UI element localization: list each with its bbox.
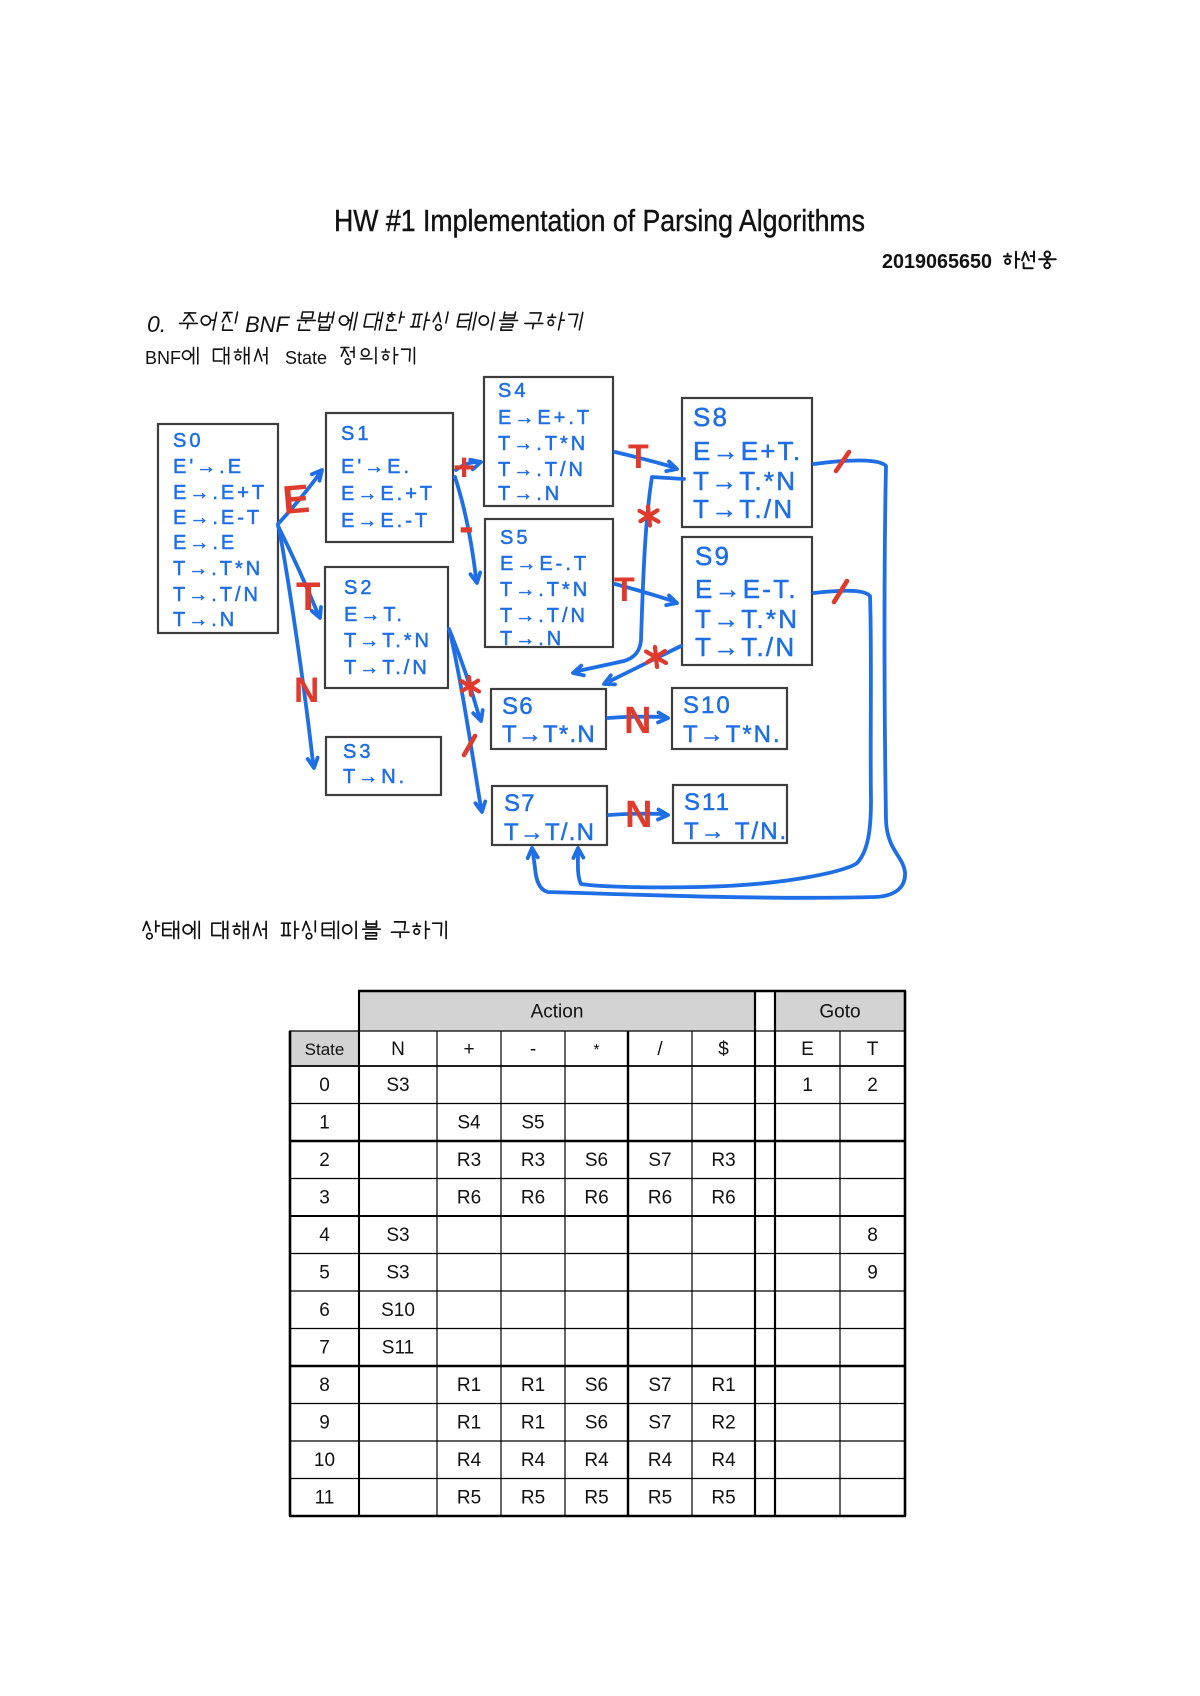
svg-text:S4: S4 (457, 1113, 481, 1134)
svg-text:E→.E: E→.E (173, 532, 237, 554)
svg-text:R3: R3 (711, 1150, 735, 1171)
svg-text:N: N (624, 700, 651, 742)
svg-text:E→E-T.: E→E-T. (695, 574, 798, 604)
svg-text:T→T*.N: T→T*.N (502, 721, 596, 748)
svg-text:N: N (391, 1039, 405, 1060)
svg-text:$: $ (718, 1039, 729, 1060)
svg-text:S11: S11 (684, 789, 731, 816)
svg-text:R1: R1 (457, 1375, 481, 1396)
svg-text:E→T.: E→T. (344, 604, 405, 626)
svg-text:E→E+T.: E→E+T. (693, 436, 802, 466)
svg-text:T: T (867, 1039, 879, 1060)
svg-text:E→E.-T: E→E.-T (341, 510, 430, 532)
svg-text:E→.E-T: E→.E-T (173, 507, 262, 529)
svg-text:T→T.*N: T→T.*N (695, 604, 799, 634)
svg-text:E: E (281, 477, 311, 523)
svg-text:R5: R5 (711, 1488, 735, 1509)
svg-text:T→.N: T→.N (173, 609, 237, 631)
svg-text:Goto: Goto (819, 1002, 860, 1023)
svg-text:T→.T*N: T→.T*N (498, 433, 588, 455)
svg-text:R6: R6 (711, 1188, 735, 1209)
svg-text:E'→.E: E'→.E (173, 456, 244, 478)
svg-text:7: 7 (319, 1338, 330, 1359)
svg-text:S11: S11 (382, 1338, 414, 1359)
svg-text:R4: R4 (457, 1450, 482, 1471)
svg-text:E: E (801, 1039, 814, 1060)
svg-text:R1: R1 (457, 1413, 481, 1434)
svg-text:HW #1 Implementation of Parsin: HW #1 Implementation of Parsing Algorith… (334, 203, 865, 238)
svg-text:5: 5 (319, 1263, 330, 1284)
svg-text:Action: Action (531, 1002, 584, 1023)
svg-text:S6: S6 (585, 1375, 608, 1396)
svg-text:T→T./N: T→T./N (344, 657, 430, 679)
svg-text:T→T./N: T→T./N (695, 632, 796, 662)
svg-text:T→N.: T→N. (343, 766, 407, 788)
svg-text:1: 1 (802, 1075, 813, 1096)
svg-text:E→.E+T: E→.E+T (173, 482, 267, 504)
svg-text:T: T (628, 438, 649, 476)
svg-text:E→E+.T: E→E+.T (498, 407, 592, 429)
svg-text:S8: S8 (693, 402, 729, 432)
svg-text:S4: S4 (498, 380, 528, 402)
svg-text:E→E-.T: E→E-.T (500, 553, 589, 575)
svg-text:T→.N: T→.N (500, 628, 564, 650)
svg-text:10: 10 (314, 1450, 335, 1471)
svg-text:R6: R6 (648, 1188, 672, 1209)
svg-text:E'→E.: E'→E. (341, 456, 412, 478)
svg-text:S10: S10 (683, 692, 732, 719)
svg-text:S3: S3 (386, 1225, 409, 1246)
svg-text:6: 6 (319, 1300, 330, 1321)
svg-text:S10: S10 (381, 1300, 415, 1321)
svg-text:T: T (614, 571, 635, 609)
svg-text:0: 0 (319, 1075, 330, 1096)
svg-text:2019065650: 2019065650 (882, 250, 992, 273)
svg-text:S7: S7 (648, 1375, 671, 1396)
svg-text:9: 9 (867, 1263, 878, 1284)
svg-text:R3: R3 (457, 1150, 481, 1171)
svg-text:R1: R1 (521, 1375, 545, 1396)
svg-text:T→ T/N.: T→ T/N. (684, 818, 788, 845)
svg-text:S7: S7 (648, 1150, 671, 1171)
svg-text:T→.T/N: T→.T/N (498, 459, 586, 481)
svg-text:S5: S5 (500, 527, 530, 549)
svg-text:E→E.+T: E→E.+T (341, 483, 435, 505)
svg-text:R1: R1 (711, 1375, 735, 1396)
svg-text:T→T/.N: T→T/.N (504, 819, 595, 846)
svg-text:-: - (530, 1039, 536, 1060)
svg-text:R5: R5 (648, 1488, 672, 1509)
svg-text:T→.T/N: T→.T/N (500, 605, 588, 627)
svg-text:0.: 0. (147, 311, 166, 337)
svg-text:T→T.*N: T→T.*N (344, 630, 432, 652)
svg-text:R5: R5 (521, 1488, 545, 1509)
svg-text:T→.T/N: T→.T/N (173, 584, 261, 606)
svg-text:S7: S7 (504, 790, 536, 817)
svg-text:T→.T*N: T→.T*N (173, 558, 263, 580)
svg-text:T: T (296, 575, 320, 619)
svg-text:R6: R6 (521, 1188, 545, 1209)
svg-text:R6: R6 (584, 1188, 608, 1209)
svg-text:2: 2 (319, 1150, 330, 1171)
svg-text:S6: S6 (585, 1150, 608, 1171)
svg-text:R4: R4 (521, 1450, 546, 1471)
svg-text:S3: S3 (386, 1075, 409, 1096)
svg-text:S0: S0 (173, 430, 203, 452)
svg-text:S2: S2 (344, 577, 374, 599)
svg-text:T→.T*N: T→.T*N (500, 579, 590, 601)
svg-text:8: 8 (867, 1225, 878, 1246)
svg-text:S3: S3 (343, 741, 373, 763)
svg-text:3: 3 (319, 1188, 330, 1209)
svg-text:S6: S6 (502, 693, 534, 720)
svg-text:R5: R5 (457, 1488, 481, 1509)
svg-text:N: N (625, 794, 652, 836)
svg-text:+: + (453, 447, 475, 489)
svg-text:R2: R2 (711, 1413, 735, 1434)
svg-text:R1: R1 (521, 1413, 545, 1434)
svg-text:8: 8 (319, 1375, 330, 1396)
svg-text:2: 2 (867, 1075, 878, 1096)
svg-text:State: State (285, 348, 327, 368)
svg-text:S7: S7 (648, 1413, 671, 1434)
svg-text:*: * (593, 1042, 599, 1059)
svg-text:S1: S1 (341, 423, 371, 445)
svg-text:R4: R4 (648, 1450, 673, 1471)
svg-text:T→.N: T→.N (498, 483, 562, 505)
svg-text:N: N (294, 671, 319, 710)
svg-text:BNF: BNF (145, 348, 181, 368)
svg-text:T→T*N.: T→T*N. (683, 721, 782, 748)
svg-text:BNF: BNF (245, 312, 291, 337)
svg-text:-: - (459, 502, 474, 551)
svg-text:S9: S9 (695, 541, 731, 571)
svg-text:R4: R4 (584, 1450, 609, 1471)
svg-text:/: / (657, 1039, 663, 1060)
svg-text:+: + (463, 1039, 474, 1060)
svg-text:9: 9 (319, 1413, 330, 1434)
svg-text:R5: R5 (584, 1488, 608, 1509)
svg-text:State: State (305, 1040, 345, 1059)
svg-text:S5: S5 (521, 1113, 544, 1134)
svg-text:S3: S3 (386, 1263, 409, 1284)
svg-text:R4: R4 (711, 1450, 736, 1471)
svg-text:S6: S6 (585, 1413, 608, 1434)
svg-text:1: 1 (319, 1113, 330, 1134)
svg-text:11: 11 (315, 1488, 335, 1509)
svg-text:T→T./N: T→T./N (693, 494, 794, 524)
svg-text:4: 4 (319, 1225, 330, 1246)
svg-text:R6: R6 (457, 1188, 481, 1209)
svg-text:R3: R3 (521, 1150, 545, 1171)
svg-text:T→T.*N: T→T.*N (693, 466, 797, 496)
